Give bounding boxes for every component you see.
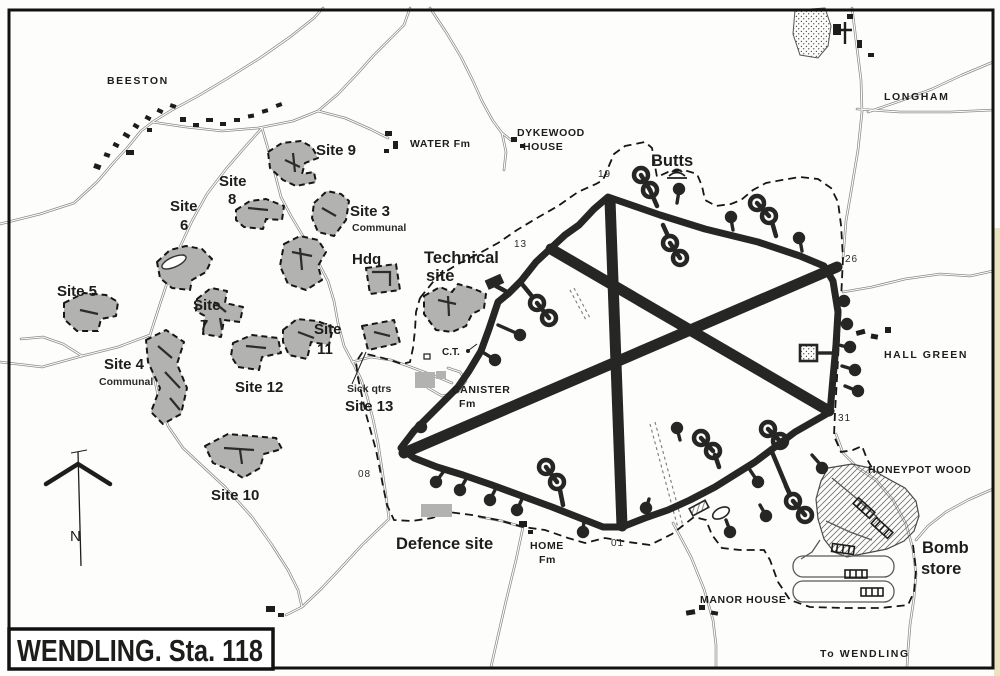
map-title: WENDLING. Sta. 118 [17, 633, 263, 668]
canister-patch [436, 371, 446, 379]
technical-patch-2 [450, 310, 466, 322]
label-water-fm: WATER Fm [410, 138, 471, 150]
label-site-4: Site 4 [104, 356, 145, 373]
label-site-5: Site 5 [57, 283, 97, 300]
label-site-11a: Site [314, 321, 342, 338]
label-longham: LONGHAM [884, 91, 949, 103]
map-canvas: BEESTON WATER Fm DYKEWOOD HOUSE LONGHAM … [0, 0, 1000, 676]
label-butts: Butts [651, 152, 693, 170]
label-control-tower: C.T. [442, 347, 460, 358]
label-dykewood-2: HOUSE [523, 141, 563, 153]
label-dykewood-1: DYKEWOOD [517, 127, 585, 139]
label-site-10: Site 10 [211, 487, 259, 504]
label-runway-08: 08 [358, 469, 371, 480]
label-defence-site: Defence site [396, 535, 493, 553]
site-3-communal-area [280, 236, 326, 290]
label-site-11b: 11 [317, 341, 333, 358]
label-site-4-sub: Communal [99, 376, 153, 388]
label-site-12: Site 12 [235, 379, 283, 396]
technical-patch [415, 372, 435, 388]
label-site-9: Site 9 [316, 142, 356, 159]
label-canister-2: Fm [459, 398, 476, 410]
label-manor-house: MANOR HOUSE [700, 594, 787, 606]
label-runway-31: 31 [838, 413, 851, 424]
wendling-airfield-map: BEESTON WATER Fm DYKEWOOD HOUSE LONGHAM … [0, 0, 1000, 676]
label-site-7b: 7 [200, 317, 208, 334]
label-bomb-store-2: store [921, 560, 961, 578]
label-technical-1: Technical [424, 249, 499, 267]
label-runway-19: 19 [598, 169, 611, 180]
defence-site-patch [421, 504, 452, 517]
label-site-8a: Site [219, 173, 247, 190]
label-runway-26: 26 [845, 254, 858, 265]
label-site-8b: 8 [228, 191, 236, 208]
label-north: N [70, 528, 81, 545]
hdq-area [366, 264, 400, 294]
label-sick-qtrs: Sick qtrs [347, 383, 392, 395]
label-runway-01: 01 [611, 538, 624, 549]
label-site-3: Site 3 [350, 203, 390, 220]
label-home-fm-1: HOME [530, 540, 564, 552]
scan-edge-artifact [994, 228, 1000, 676]
label-beeston: BEESTON [107, 75, 169, 87]
label-runway-13: 13 [514, 239, 527, 250]
label-hdq: Hdq [352, 251, 381, 268]
label-to-wendling: To WENDLING [820, 648, 910, 660]
label-site-13: Site 13 [345, 398, 393, 415]
label-honeypot-wood: HONEYPOT WOOD [868, 464, 971, 476]
label-site-3-sub: Communal [352, 222, 406, 234]
title-box: WENDLING. Sta. 118 [9, 629, 273, 669]
label-home-fm-2: Fm [539, 554, 556, 566]
label-hall-green: HALL GREEN [884, 349, 968, 361]
label-site-7a: Site [193, 297, 221, 314]
label-site-6a: Site [170, 198, 198, 215]
label-canister-1: CANISTER [452, 384, 510, 396]
label-technical-2: site [426, 267, 454, 285]
label-site-6b: 6 [180, 217, 188, 234]
label-bomb-store-1: Bomb [922, 539, 969, 557]
